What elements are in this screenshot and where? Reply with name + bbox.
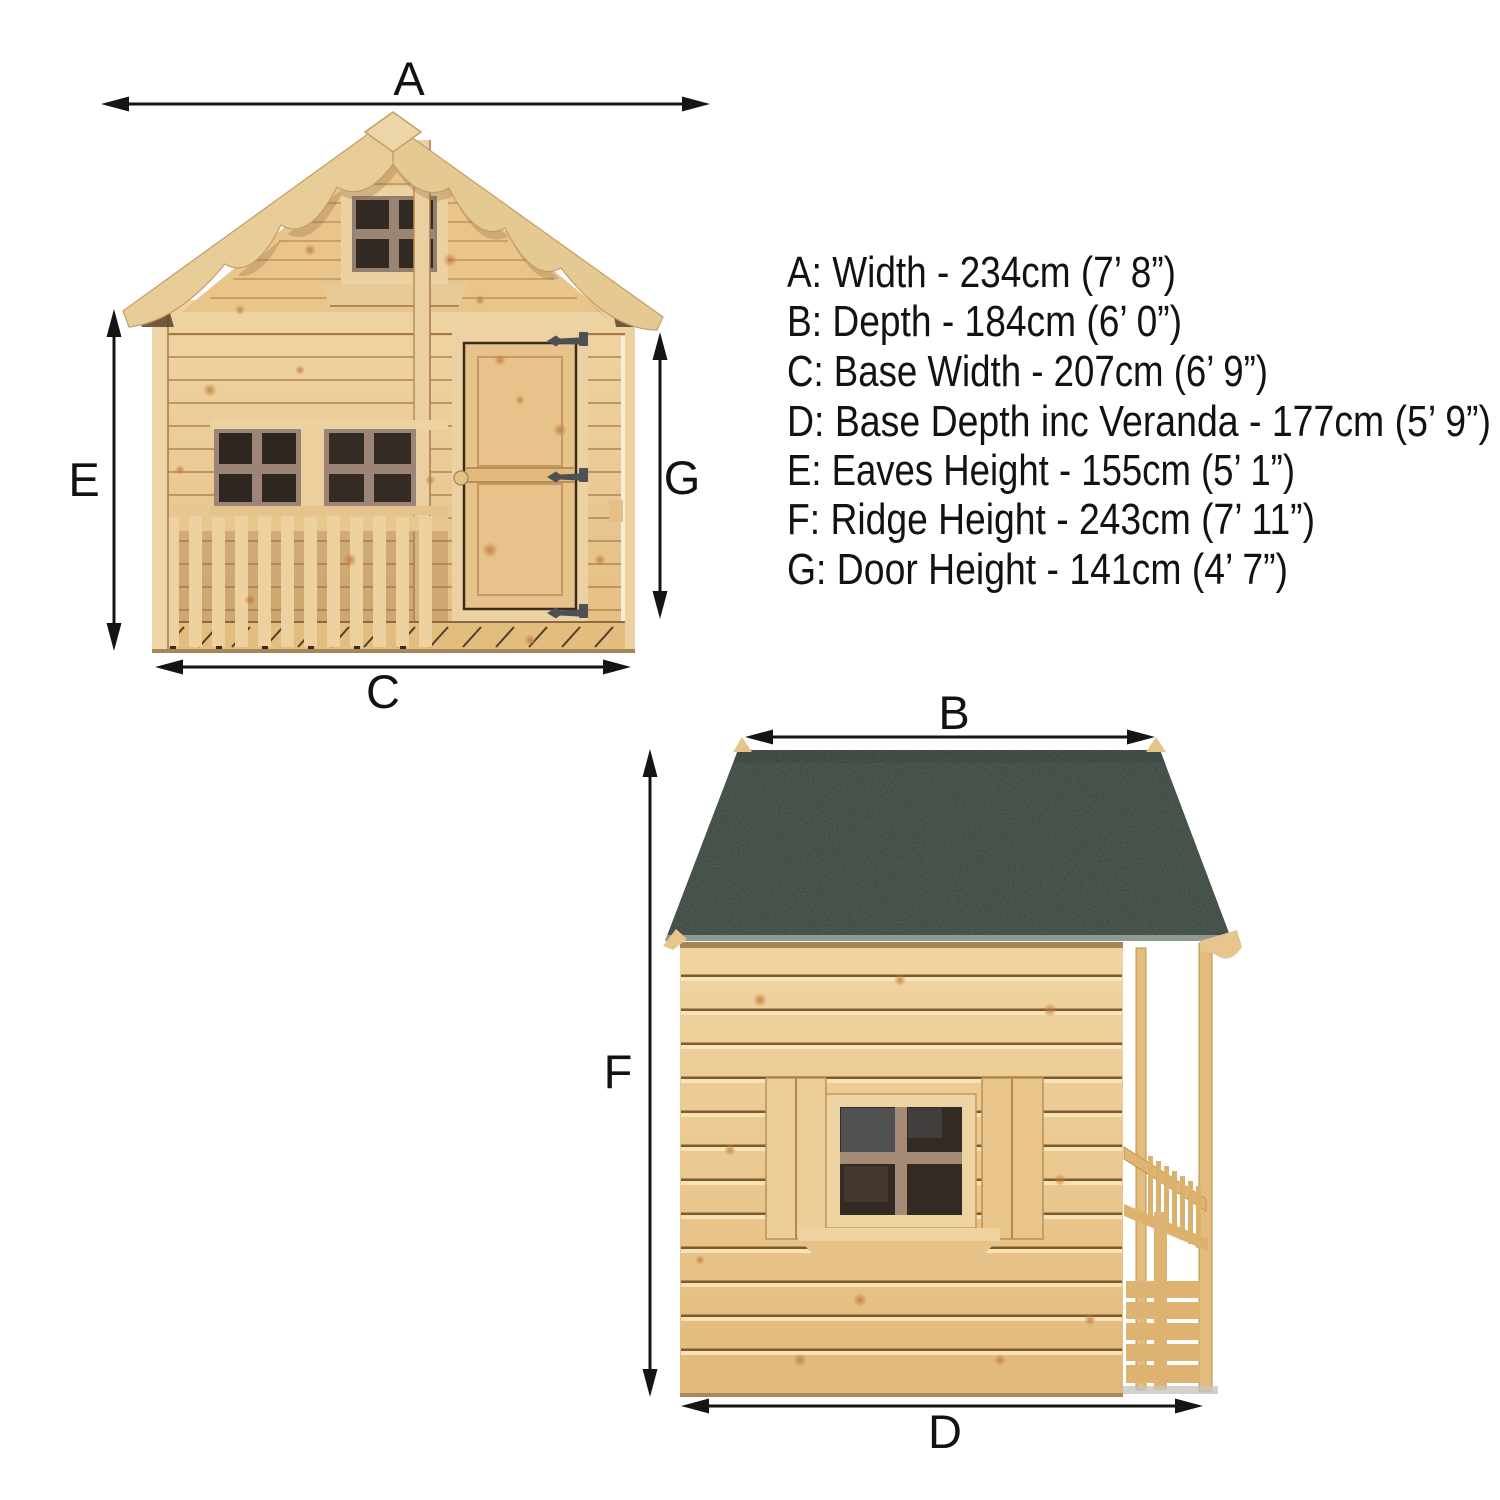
svg-text:B: B <box>938 686 969 739</box>
svg-text:C: C <box>366 665 400 718</box>
svg-text:A: A <box>393 52 425 105</box>
svg-text:E: Eaves Height - 155cm (5’ 1”: E: Eaves Height - 155cm (5’ 1”) <box>787 446 1295 495</box>
svg-text:B: Depth - 184cm (6’ 0”): B: Depth - 184cm (6’ 0”) <box>787 297 1182 346</box>
svg-text:D: Base Depth inc Veranda - 17: D: Base Depth inc Veranda - 177cm (5’ 9”… <box>787 397 1491 446</box>
svg-text:E: E <box>68 453 99 506</box>
svg-text:C: Base Width - 207cm (6’ 9”): C: Base Width - 207cm (6’ 9”) <box>787 347 1268 396</box>
svg-text:G: Door Height - 141cm (4’ 7”): G: Door Height - 141cm (4’ 7”) <box>787 545 1288 594</box>
svg-text:F: Ridge Height - 243cm (7’ 11: F: Ridge Height - 243cm (7’ 11”) <box>787 495 1315 544</box>
svg-text:F: F <box>604 1045 633 1098</box>
svg-text:A: Width - 234cm (7’ 8”): A: Width - 234cm (7’ 8”) <box>787 248 1176 297</box>
svg-text:G: G <box>664 451 701 504</box>
svg-text:D: D <box>928 1405 962 1458</box>
